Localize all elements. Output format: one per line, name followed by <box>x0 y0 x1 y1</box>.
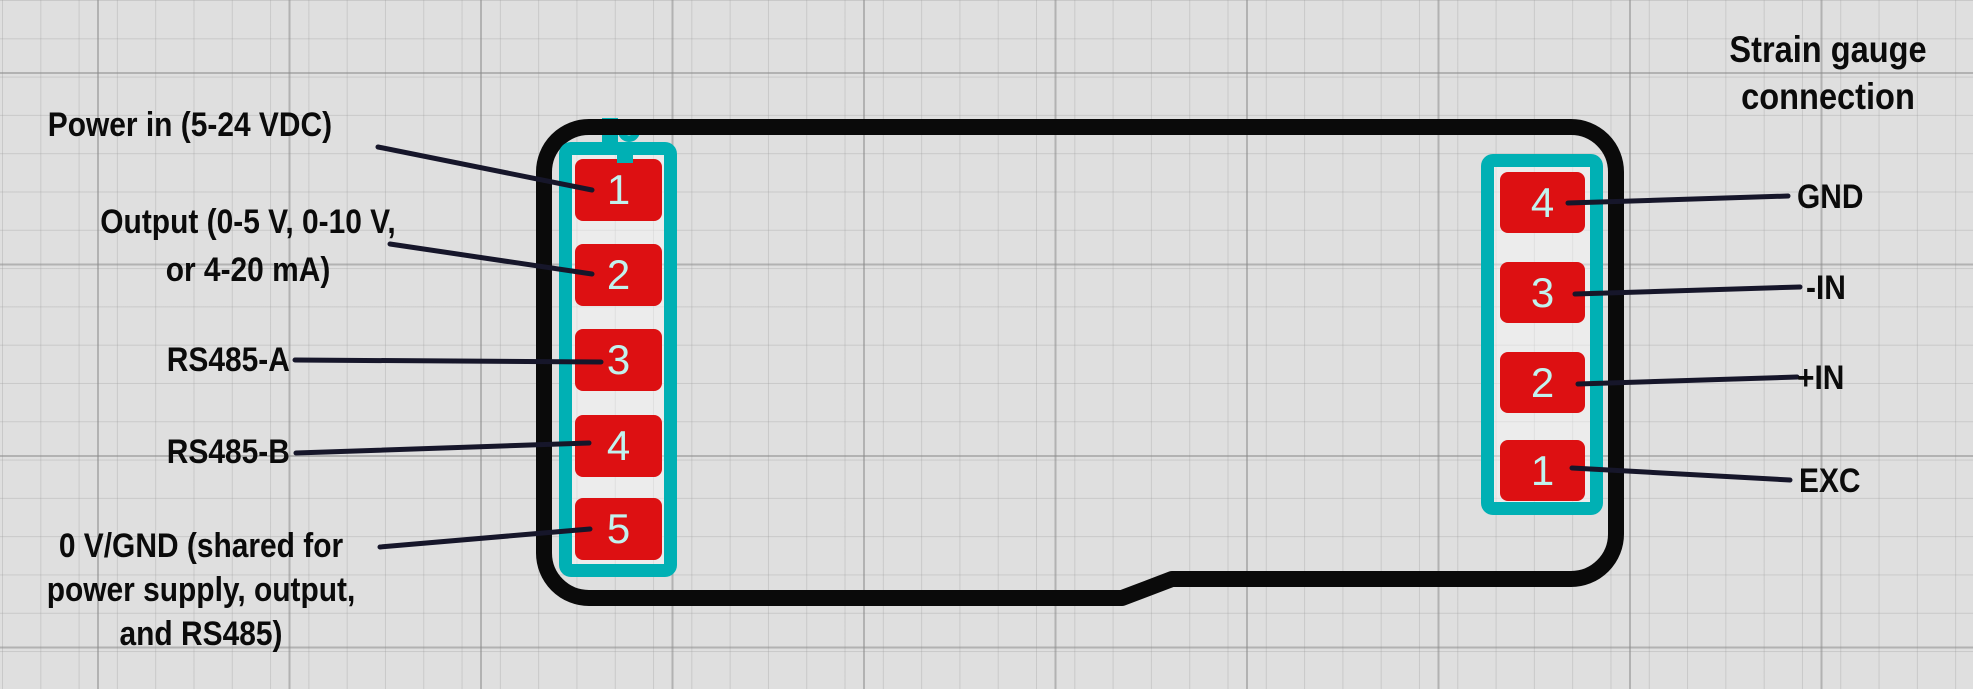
label-rs485-a: RS485-A <box>167 338 290 382</box>
leader-gnd <box>1568 196 1788 203</box>
pinout-diagram: 1 2 3 4 5 4 3 2 1 Power in (5-24 VDC) Ou… <box>0 0 1973 689</box>
pin1-marker-stub <box>617 150 633 163</box>
leader-rs485-b <box>296 443 589 453</box>
label-output: Output (0-5 V, 0-10 V, or 4-20 mA) <box>63 198 433 294</box>
label-rs485-b: RS485-B <box>167 430 290 474</box>
strain-gauge-heading: Strain gauge connection <box>1671 26 1973 120</box>
leader-exc <box>1572 468 1790 480</box>
leader-power-in <box>378 147 592 190</box>
label-neg-in: -IN <box>1806 266 1846 310</box>
leader-neg-in <box>1575 287 1800 294</box>
label-0v-gnd: 0 V/GND (shared for power supply, output… <box>24 524 378 656</box>
label-gnd: GND <box>1797 175 1863 219</box>
label-pos-in: +IN <box>1797 356 1844 400</box>
leader-rs485-a <box>295 360 601 362</box>
label-power-in: Power in (5-24 VDC) <box>48 103 332 147</box>
label-exc: EXC <box>1799 459 1861 503</box>
leader-pos-in <box>1578 377 1797 384</box>
leader-0v-gnd <box>380 529 590 547</box>
